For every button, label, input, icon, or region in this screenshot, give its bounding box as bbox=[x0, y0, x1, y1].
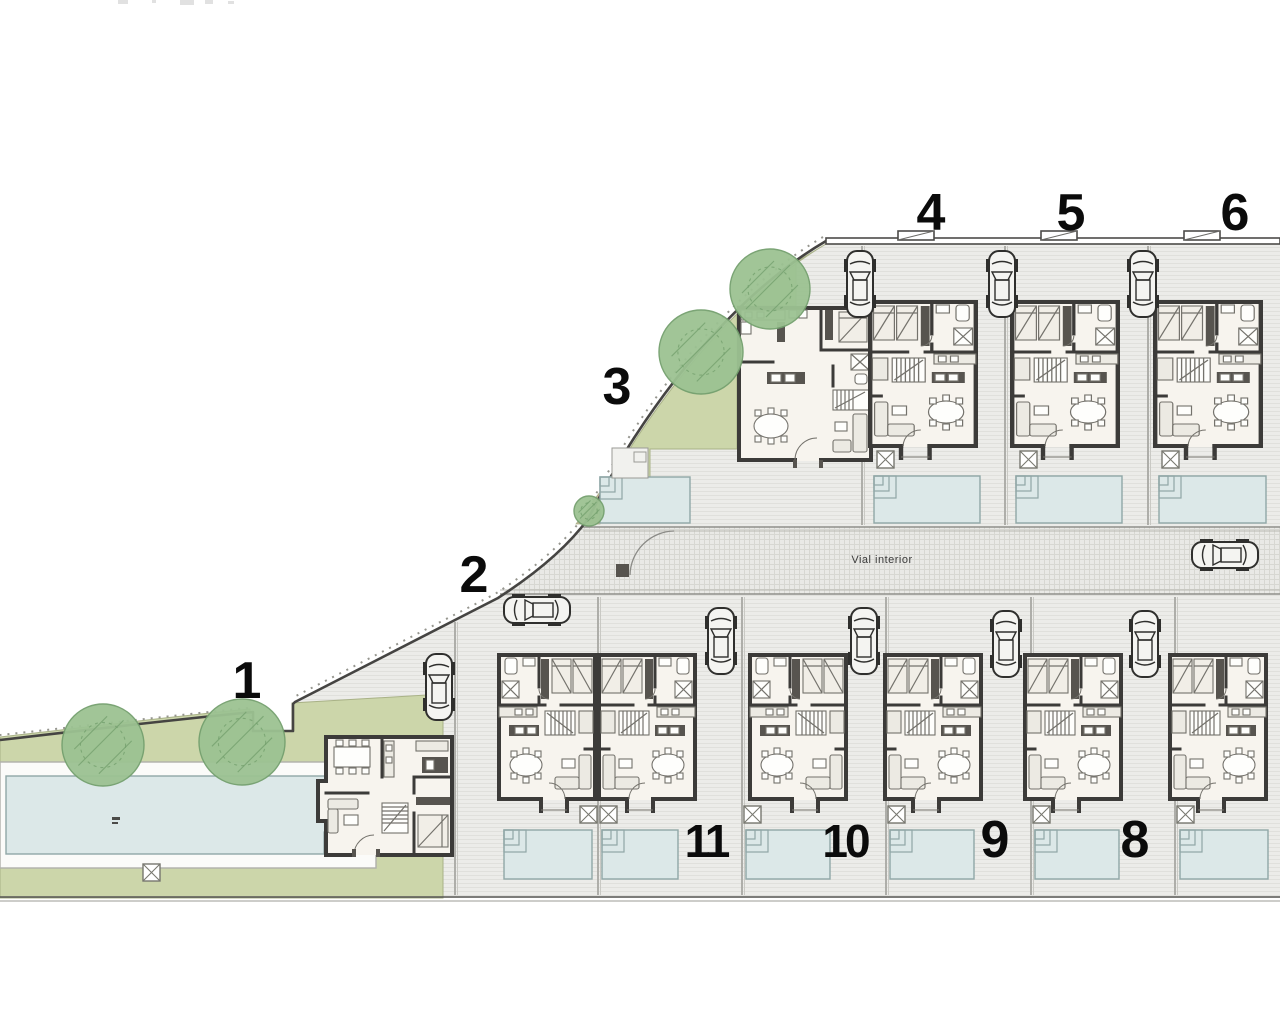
car-top-1 bbox=[844, 251, 876, 317]
car-top-3 bbox=[1127, 251, 1159, 317]
plot-number-9: 9 bbox=[981, 811, 1010, 869]
pool-house-5 bbox=[1016, 476, 1122, 523]
house-11-plan bbox=[598, 654, 696, 811]
tree-icon bbox=[199, 699, 285, 785]
house-8-plan bbox=[1024, 654, 1122, 811]
utility-box-icon bbox=[877, 451, 894, 468]
car-house-2 bbox=[504, 594, 570, 626]
utility-box-icon bbox=[1020, 451, 1037, 468]
car-top-2 bbox=[986, 251, 1018, 317]
pool-house-9 bbox=[890, 830, 974, 879]
pool-house-10 bbox=[746, 830, 830, 879]
house-4-plan bbox=[869, 301, 977, 458]
house-10-plan bbox=[749, 654, 847, 811]
house-2-plan bbox=[498, 654, 596, 811]
pool-house-3 bbox=[600, 477, 690, 523]
plot-number-8: 8 bbox=[1121, 811, 1150, 869]
car-bottom-2 bbox=[848, 608, 880, 674]
plot-number-1: 1 bbox=[233, 652, 262, 710]
utility-box-icon bbox=[1033, 806, 1050, 823]
utility-box-icon bbox=[143, 864, 160, 881]
house-3-plan bbox=[738, 307, 872, 468]
car-road bbox=[1192, 539, 1258, 571]
site-plan-canvas: 123456891011 Vial interior bbox=[0, 0, 1280, 1024]
pool-label-illegible bbox=[112, 817, 120, 820]
utility-box-icon bbox=[600, 806, 617, 823]
plot-number-4: 4 bbox=[917, 184, 946, 242]
pool-house-2 bbox=[504, 830, 592, 879]
utility-box-icon bbox=[580, 806, 597, 823]
plot-number-10: 10 bbox=[822, 815, 869, 867]
house-6-plan bbox=[1154, 301, 1262, 458]
plot-number-2: 2 bbox=[460, 546, 489, 604]
utility-box-icon bbox=[1162, 451, 1179, 468]
car-bottom-4 bbox=[1129, 611, 1161, 677]
pool-house-7 bbox=[1180, 830, 1268, 879]
pool-house-11 bbox=[602, 830, 678, 879]
utility-box-icon bbox=[888, 806, 905, 823]
tree-icon bbox=[574, 496, 604, 526]
tree-icon bbox=[659, 310, 743, 394]
road-label: Vial interior bbox=[851, 554, 912, 566]
fence-gate bbox=[1184, 231, 1220, 240]
plot-number-11: 11 bbox=[685, 815, 730, 867]
car-bottom-1 bbox=[705, 608, 737, 674]
pool-house-6 bbox=[1159, 476, 1266, 523]
house-5-plan bbox=[1011, 301, 1119, 458]
tree-icon bbox=[62, 704, 144, 786]
house-9-plan bbox=[884, 654, 982, 811]
plot-number-6: 6 bbox=[1221, 184, 1250, 242]
tree-icon bbox=[730, 249, 810, 329]
plot-number-3: 3 bbox=[603, 358, 632, 416]
utility-box-icon bbox=[1177, 806, 1194, 823]
house-7-plan bbox=[1169, 654, 1267, 811]
pool-label-illegible bbox=[112, 822, 118, 824]
pool-house-4 bbox=[874, 476, 980, 523]
house-1-plan bbox=[318, 737, 452, 857]
pool-house-8 bbox=[1035, 830, 1119, 879]
car-bottom-3 bbox=[990, 611, 1022, 677]
utility-box-icon bbox=[744, 806, 761, 823]
plot-number-5: 5 bbox=[1057, 184, 1086, 242]
car-house-1 bbox=[423, 654, 455, 720]
